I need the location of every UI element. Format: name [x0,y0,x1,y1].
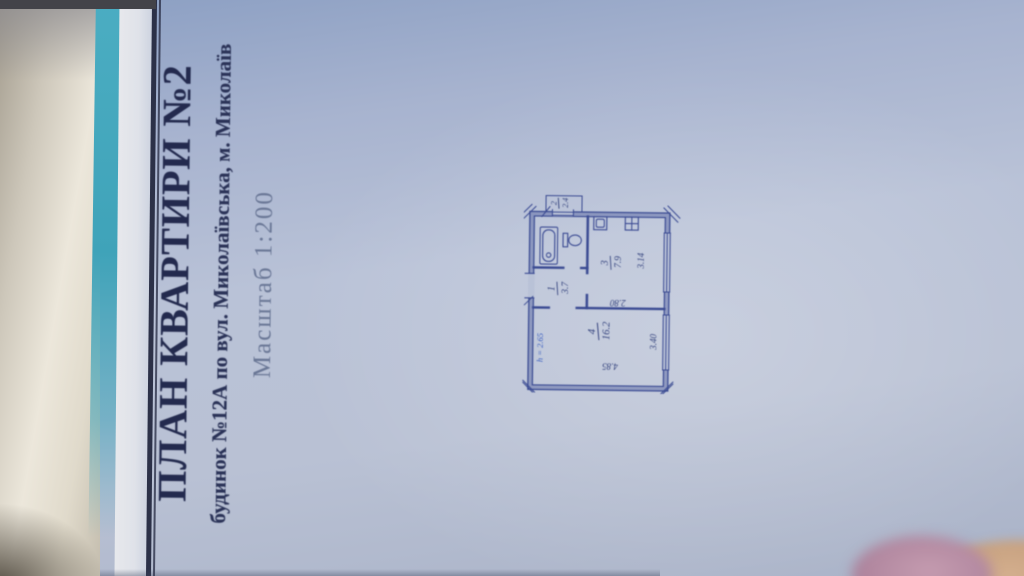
sink-icon [594,217,607,230]
dimension-living-depth: 4.85 [602,361,618,371]
hallway-number: 1 [546,286,557,291]
toilet-icon [563,233,581,247]
dimension-kitchen-depth: 2.80 [609,298,625,308]
floor-plan-drawing: 4 16.2 1 3.7 3 7.9 2 2.4 3.40 3.14 4.85 … [522,192,694,394]
stove-icon [625,217,638,230]
folder-page-edges [0,0,100,576]
dimension-kitchen-width: 3.14 [636,252,646,269]
floor-plan-svg: 4 16.2 1 3.7 3 7.9 2 2.4 3.40 3.14 4.85 … [522,192,694,394]
living-room-area: 16.2 [601,321,612,340]
kitchen-area: 7.9 [614,256,624,268]
photo-of-floor-plan-document: ПЛАН КВАРТИРИ №2 будинок №12А по вул. Ми… [0,0,1024,576]
table-edge-shadow [0,0,156,9]
apartment-plan-document: ПЛАН КВАРТИРИ №2 будинок №12А по вул. Ми… [137,0,1024,576]
balcony-number: 2 [550,201,559,205]
balcony-area: 2.4 [561,198,570,208]
bottom-edge-shadow [100,569,660,576]
living-room-number: 4 [586,328,598,334]
outer-walls [528,211,670,391]
document-scale: Масштаб 1:200 [247,0,282,572]
outer-wall-band [530,213,668,389]
kitchen-number: 3 [600,260,611,266]
hallway-area: 3.7 [561,281,571,295]
ceiling-height-note: h = 2.65 [535,333,545,362]
corner-hatch-marks [522,204,680,394]
living-room-window [662,315,670,370]
dimension-living-width: 3.40 [648,333,658,350]
balcony-door [552,210,573,217]
bathtub-icon [540,227,558,264]
kitchen-window [663,233,671,292]
document-address: будинок №12А по вул. Миколаївська, м. Ми… [206,0,238,572]
